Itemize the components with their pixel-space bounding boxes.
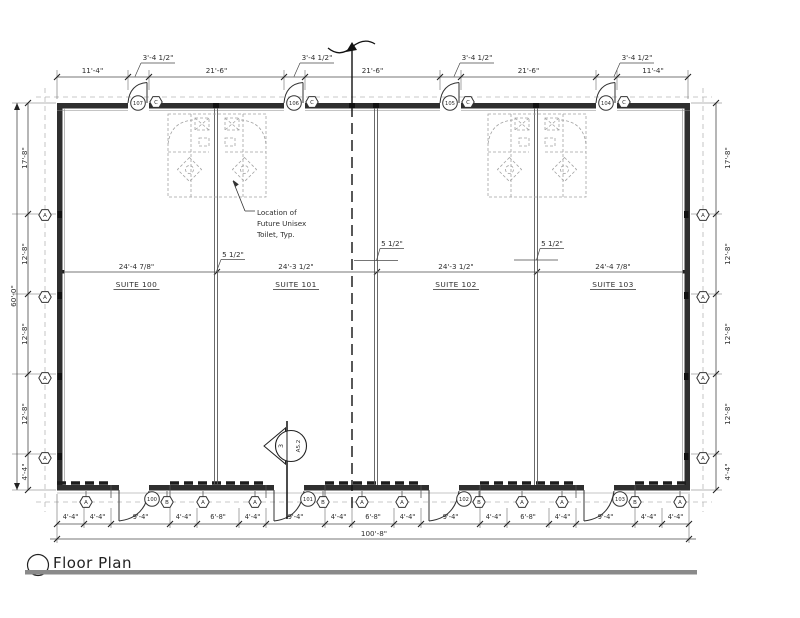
- reference-dashed-lines: [36, 88, 712, 512]
- door-tag-100: 100: [147, 497, 157, 503]
- dim-bottom-overall: 100'-8": [361, 529, 387, 538]
- wall-tag-a-bottom-2: A: [201, 500, 205, 506]
- wall-tag-a-right-3: A: [701, 376, 705, 382]
- dim-bottom-16: 4'-4": [668, 513, 684, 521]
- suite-2-name: SUITE 102: [435, 280, 477, 289]
- dim-bottom-11: 4'-4": [486, 513, 502, 521]
- dimension-ticks: [25, 74, 719, 542]
- dim-left-1: 12'-8": [20, 243, 29, 265]
- suite-1-name: SUITE 101: [275, 280, 317, 289]
- wall-tag-b-3: B: [477, 500, 481, 506]
- dim-right-0: 17'-8": [723, 147, 732, 169]
- door-tag-106: 106: [289, 101, 299, 107]
- dim-bottom-6: 9'-4": [288, 513, 304, 521]
- top-dimensions: 11'-4" 21'-6" 21'-6" 21'-6" 11'-4" 3'-4 …: [82, 53, 664, 75]
- suite-2-width: 24'-3 1/2": [438, 262, 473, 271]
- door-tag-107: 107: [133, 101, 143, 107]
- wall-tag-a-left-4: A: [43, 456, 47, 462]
- dim-top-2: 21'-6": [362, 66, 384, 75]
- door-tag-102: 102: [459, 497, 469, 503]
- wall-tag-c-2: C: [310, 100, 314, 106]
- door-tag-103: 103: [615, 497, 625, 503]
- future-toilet-clusters: [168, 114, 586, 197]
- dim-bottom-9: 4'-4": [400, 513, 416, 521]
- left-dimensions: 60'-0" 17'-8" 12'-8" 12'-8" 12'-8" 4'-4": [9, 147, 29, 480]
- dim-bottom-12: 6'-8": [520, 513, 536, 521]
- wall-inner-faces: [57, 108, 690, 493]
- section-number: 3: [277, 444, 285, 448]
- dim-right-2: 12'-8": [723, 323, 732, 345]
- drawing-title-block: Floor Plan: [25, 554, 697, 576]
- dim-bottom-8: 6'-8": [365, 513, 381, 521]
- dim-bottom-4: 6'-8": [210, 513, 226, 521]
- dim-right-4: 4'-4": [723, 463, 732, 480]
- tag-markers: AAAAAAAAAAAAAAAABBBBCCCC1071061051041001…: [39, 96, 709, 508]
- wall-tag-a-right-2: A: [701, 295, 705, 301]
- wall-tag-a-right-1: A: [701, 213, 705, 219]
- dim-door-width-3: 3'-4 1/2": [462, 53, 493, 62]
- door-tag-101: 101: [303, 497, 313, 503]
- wall-tag-a-bottom-4: A: [360, 500, 364, 506]
- dim-bottom-7: 4'-4": [331, 513, 347, 521]
- match-line-flag: [346, 42, 357, 52]
- door-tag-105: 105: [445, 101, 455, 107]
- dim-bottom-5: 4'-4": [245, 513, 261, 521]
- dim-bottom-10: 9'-4": [443, 513, 459, 521]
- wall-tag-a-bottom-5: A: [400, 500, 404, 506]
- dim-top-4: 11'-4": [642, 66, 664, 75]
- annotation-line-3: Toilet, Typ.: [256, 230, 295, 239]
- dim-top-0: 11'-4": [82, 66, 104, 75]
- wall-tag-a-left-1: A: [43, 213, 47, 219]
- wall-thickness-leaders: [217, 249, 565, 272]
- suite-0-width: 24'-4 7/8": [119, 262, 154, 271]
- wall-tag-a-right-4: A: [701, 456, 705, 462]
- extension-lines: [12, 70, 722, 543]
- dim-bottom-2: 9'-4": [133, 513, 149, 521]
- suite-3-width: 24'-4 7/8": [595, 262, 630, 271]
- interior-walls: [215, 108, 538, 485]
- dim-left-4: 4'-4": [20, 463, 29, 480]
- wall-tag-a-left-3: A: [43, 376, 47, 382]
- suite-0-name: SUITE 100: [116, 280, 158, 289]
- wall-thickness-1: 5 1/2": [222, 250, 244, 259]
- overall-dim-arrows: [14, 103, 686, 490]
- floor-plan-sheet: 3 A5.2 Location of Future Unisex Toilet,…: [0, 0, 800, 618]
- bottom-dimensions: 4'-4" 4'-4" 9'-4" 4'-4" 6'-8" 4'-4" 9'-4…: [63, 513, 684, 538]
- wall-tag-a-bottom-1: A: [84, 500, 88, 506]
- wall-tag-b-2: B: [321, 500, 325, 506]
- section-cut-line: [328, 41, 375, 512]
- dim-bottom-14: 9'-4": [598, 513, 614, 521]
- wall-tag-b-1: B: [165, 500, 169, 506]
- door-tag-104: 104: [601, 101, 612, 107]
- dim-door-width-4: 3'-4 1/2": [622, 53, 653, 62]
- dim-left-0: 17'-8": [20, 147, 29, 169]
- wall-tag-c-3: C: [466, 100, 470, 106]
- suite-1-width: 24'-3 1/2": [278, 262, 313, 271]
- dim-bottom-13: 4'-4": [555, 513, 571, 521]
- wall-tag-c-4: C: [622, 100, 626, 106]
- dimension-lines: [17, 77, 716, 539]
- toilet-cluster-left: [168, 114, 266, 197]
- dim-right-3: 12'-8": [723, 403, 732, 425]
- dim-top-3: 21'-6": [518, 66, 540, 75]
- suite-3-name: SUITE 103: [592, 280, 634, 289]
- floor-plan-drawing: 3 A5.2 Location of Future Unisex Toilet,…: [0, 0, 800, 618]
- dim-left-3: 12'-8": [20, 403, 29, 425]
- dim-top-1: 21'-6": [206, 66, 228, 75]
- dim-left-2: 12'-8": [20, 323, 29, 345]
- toilet-cluster-right: [488, 114, 586, 197]
- section-sheet: A5.2: [296, 440, 302, 453]
- dim-bottom-15: 4'-4": [641, 513, 657, 521]
- wall-tag-a-bottom-7: A: [560, 500, 564, 506]
- toilet-annotation: Location of Future Unisex Toilet, Typ.: [256, 208, 307, 239]
- annotation-line-2: Future Unisex: [257, 219, 307, 228]
- dim-right-1: 12'-8": [723, 243, 732, 265]
- annotation-line-1: Location of: [257, 208, 297, 217]
- dim-left-overall: 60'-0": [9, 285, 18, 307]
- dim-bottom-3: 4'-4": [176, 513, 192, 521]
- wall-thickness-callouts: 5 1/2" 5 1/2" 5 1/2": [222, 239, 563, 259]
- wall-tag-a-bottom-8: A: [678, 500, 682, 506]
- drawing-title: Floor Plan: [53, 554, 132, 572]
- rear-doors: [128, 83, 615, 104]
- right-dimensions: 17'-8" 12'-8" 12'-8" 12'-8" 4'-4": [723, 147, 732, 480]
- dim-bottom-0: 4'-4": [63, 513, 79, 521]
- dim-door-width-2: 3'-4 1/2": [302, 53, 333, 62]
- building-walls: [57, 103, 690, 491]
- dim-bottom-1: 4'-4": [90, 513, 106, 521]
- wall-tag-a-bottom-3: A: [253, 500, 257, 506]
- wall-tag-a-bottom-6: A: [520, 500, 524, 506]
- wall-thickness-2: 5 1/2": [381, 239, 403, 248]
- title-underline-bar: [25, 570, 697, 575]
- dim-door-width-1: 3'-4 1/2": [143, 53, 174, 62]
- wall-tag-c-1: C: [154, 100, 158, 106]
- wall-tag-b-4: B: [633, 500, 637, 506]
- wall-tag-a-left-2: A: [43, 295, 47, 301]
- wall-thickness-3: 5 1/2": [541, 239, 563, 248]
